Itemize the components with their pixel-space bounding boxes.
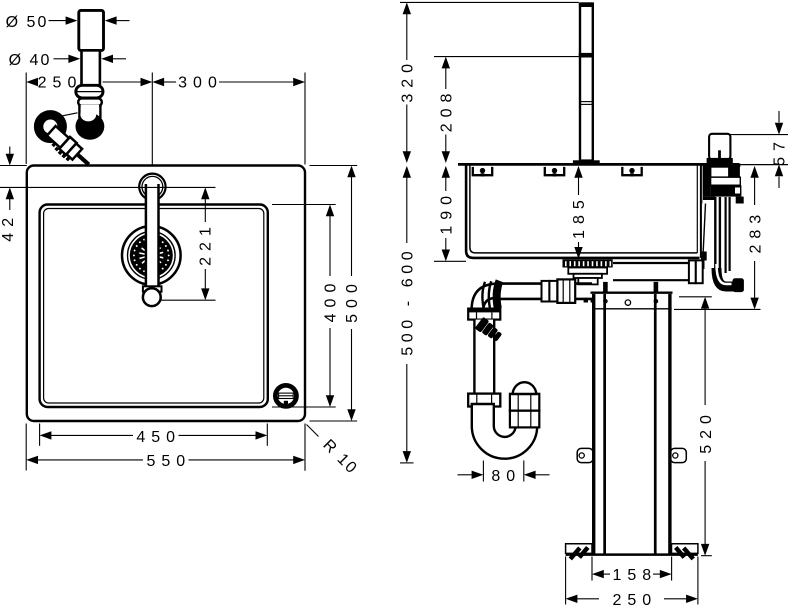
svg-text:400: 400: [323, 278, 340, 323]
svg-text:Ø 50: Ø 50: [6, 14, 49, 31]
svg-text:500: 500: [344, 278, 361, 323]
svg-text:190: 190: [439, 190, 456, 235]
svg-text:221: 221: [198, 221, 215, 266]
svg-text:80: 80: [491, 468, 521, 485]
svg-text:185: 185: [571, 194, 588, 239]
svg-text:158: 158: [612, 567, 657, 584]
svg-text:283: 283: [747, 209, 764, 254]
svg-text:Ø 40: Ø 40: [9, 52, 52, 69]
svg-text:500 - 600: 500 - 600: [400, 247, 417, 356]
svg-text:42: 42: [0, 212, 17, 242]
svg-text:250: 250: [612, 592, 657, 609]
svg-text:450: 450: [136, 429, 181, 446]
svg-text:208: 208: [439, 88, 456, 133]
svg-text:550: 550: [146, 453, 191, 470]
svg-text:57: 57: [771, 136, 788, 166]
svg-text:250: 250: [38, 75, 83, 92]
svg-text:300: 300: [178, 75, 223, 92]
svg-text:520: 520: [698, 409, 715, 454]
svg-text:320: 320: [400, 58, 417, 103]
